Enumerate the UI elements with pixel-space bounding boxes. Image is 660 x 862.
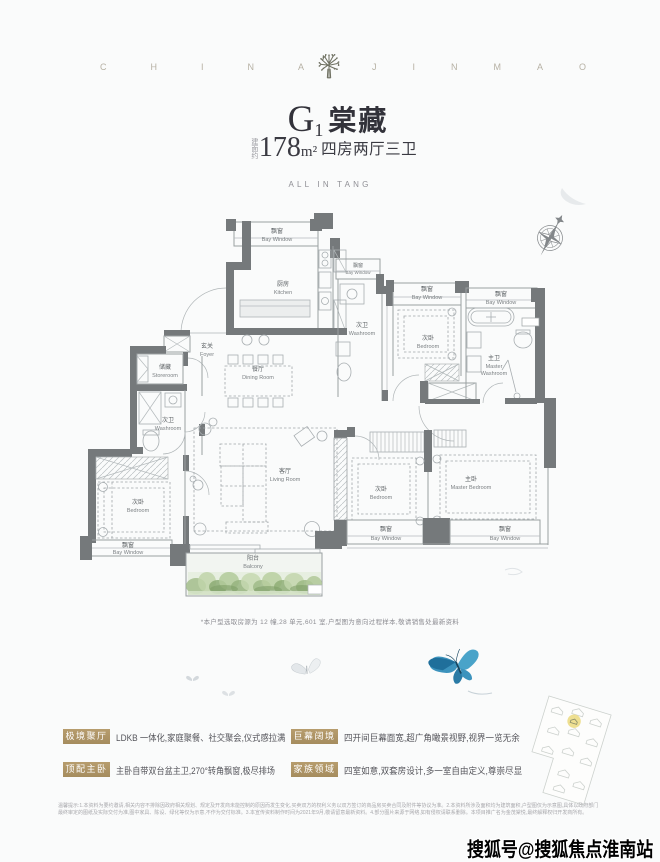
svg-text:Master: Master bbox=[486, 364, 503, 370]
svg-text:飘窗: 飘窗 bbox=[421, 285, 433, 293]
svg-text:Living Room: Living Room bbox=[270, 477, 301, 483]
svg-text:Bay Window: Bay Window bbox=[486, 300, 517, 306]
svg-text:Kitchen: Kitchen bbox=[274, 290, 292, 296]
svg-text:阳台: 阳台 bbox=[247, 554, 259, 562]
svg-text:飘窗: 飘窗 bbox=[353, 262, 363, 269]
svg-text:次卧: 次卧 bbox=[422, 334, 434, 342]
svg-text:Balcony: Balcony bbox=[243, 564, 263, 570]
svg-text:Bay Window: Bay Window bbox=[113, 550, 144, 556]
svg-text:Bay Window: Bay Window bbox=[262, 237, 293, 243]
svg-text:Master Bedroom: Master Bedroom bbox=[451, 485, 492, 491]
svg-text:玄关: 玄关 bbox=[201, 342, 213, 350]
svg-text:Bedroom: Bedroom bbox=[370, 495, 393, 501]
svg-text:Washroom: Washroom bbox=[481, 371, 508, 377]
svg-text:Bedroom: Bedroom bbox=[417, 344, 440, 350]
svg-text:次卫: 次卫 bbox=[162, 416, 174, 424]
svg-text:飘窗: 飘窗 bbox=[380, 525, 392, 533]
svg-text:主卧: 主卧 bbox=[465, 475, 477, 483]
svg-text:储藏: 储藏 bbox=[159, 363, 171, 371]
svg-text:Washroom: Washroom bbox=[349, 331, 376, 337]
svg-text:厨房: 厨房 bbox=[277, 280, 289, 288]
svg-text:Bay Window: Bay Window bbox=[412, 295, 443, 301]
svg-text:次卧: 次卧 bbox=[132, 498, 144, 506]
svg-text:Washroom: Washroom bbox=[155, 426, 182, 432]
svg-text:次卫: 次卫 bbox=[356, 321, 368, 329]
svg-text:Storeroom: Storeroom bbox=[152, 373, 178, 379]
svg-text:飘窗: 飘窗 bbox=[495, 290, 507, 298]
svg-text:飘窗: 飘窗 bbox=[271, 227, 283, 235]
svg-text:主卫: 主卫 bbox=[488, 354, 500, 362]
svg-text:Bedroom: Bedroom bbox=[127, 508, 150, 514]
svg-text:客厅: 客厅 bbox=[279, 467, 291, 475]
svg-text:次卧: 次卧 bbox=[375, 485, 387, 493]
svg-text:Bay Window: Bay Window bbox=[345, 270, 371, 275]
svg-text:Dining Room: Dining Room bbox=[242, 375, 274, 381]
svg-text:飘窗: 飘窗 bbox=[499, 525, 511, 533]
svg-text:Bay Window: Bay Window bbox=[371, 536, 402, 542]
svg-text:Bay Window: Bay Window bbox=[490, 536, 521, 542]
svg-text:飘窗: 飘窗 bbox=[122, 541, 134, 549]
